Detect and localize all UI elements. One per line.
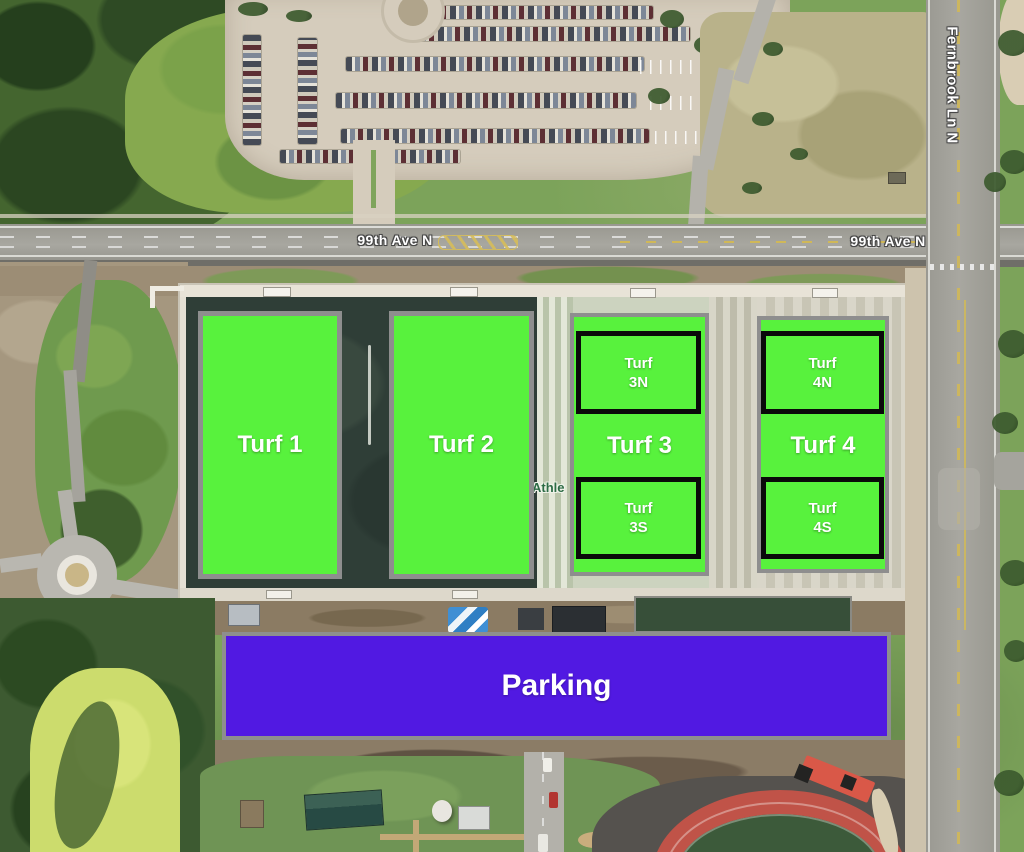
turf-4n-label: Turf 4N bbox=[808, 354, 836, 392]
dark-building bbox=[552, 606, 606, 634]
turf-4-label: Turf 4 bbox=[791, 432, 856, 460]
road-edge-line bbox=[0, 255, 1024, 257]
dirt-path bbox=[380, 834, 525, 840]
complex-stripe-strip bbox=[709, 296, 757, 588]
turn-lane-patch bbox=[938, 468, 980, 530]
tree bbox=[998, 330, 1024, 358]
car bbox=[549, 792, 558, 808]
car-row bbox=[346, 57, 644, 71]
overlay-turf-4n: Turf 4N bbox=[761, 331, 884, 414]
tree bbox=[790, 148, 808, 160]
overlay-turf-3: Turf 3N Turf 3 Turf 3S bbox=[570, 313, 709, 576]
turf-3-label-zone: Turf 3 bbox=[574, 414, 705, 477]
street-label-fernbrook: Fernbrook Ln N bbox=[944, 26, 961, 143]
blue-tent bbox=[448, 607, 488, 633]
road-fernbrook bbox=[926, 0, 1000, 852]
turf-3-label: Turf 3 bbox=[607, 432, 672, 460]
car-column bbox=[298, 38, 317, 144]
street-label-99th-ave-east: 99th Ave N bbox=[818, 233, 958, 249]
car bbox=[538, 834, 548, 852]
tree bbox=[763, 42, 783, 56]
car bbox=[543, 758, 552, 772]
crosswalk bbox=[930, 264, 994, 270]
tree bbox=[752, 112, 774, 126]
bleacher bbox=[263, 287, 291, 297]
turf-4-label-zone: Turf 4 bbox=[761, 414, 885, 477]
tree bbox=[286, 10, 312, 22]
overlay-turf-3n: Turf 3N bbox=[576, 331, 701, 414]
turf-1-label: Turf 1 bbox=[238, 431, 303, 459]
bleacher bbox=[452, 590, 478, 599]
gray-shed bbox=[228, 604, 260, 626]
side-road-east bbox=[994, 452, 1024, 490]
park-label-partial: Athle bbox=[532, 480, 565, 495]
turf-4s-label: Turf 4S bbox=[808, 499, 836, 537]
east-sidewalk-strip bbox=[905, 268, 926, 852]
car-row bbox=[336, 93, 636, 108]
turf-3n-label: Turf 3N bbox=[624, 354, 652, 392]
white-dome bbox=[432, 800, 452, 822]
road-edge-line bbox=[0, 226, 1024, 228]
dirt-path bbox=[413, 820, 419, 852]
field-shed bbox=[888, 172, 906, 184]
field-center-line bbox=[368, 345, 371, 445]
white-building bbox=[458, 806, 490, 830]
overlay-parking: Parking bbox=[222, 632, 891, 740]
tree bbox=[984, 172, 1006, 192]
tree bbox=[992, 412, 1018, 434]
tree bbox=[994, 770, 1024, 796]
satellite-map: 99th Ave N 99th Ave N Fernbrook Ln N Ath… bbox=[0, 0, 1024, 852]
tree bbox=[742, 182, 762, 194]
overlay-turf-2: Turf 2 bbox=[389, 311, 534, 579]
dry-field bbox=[700, 12, 932, 217]
tree bbox=[648, 88, 670, 104]
bleacher bbox=[266, 590, 292, 599]
car-row bbox=[412, 27, 690, 41]
bleacher bbox=[630, 288, 656, 298]
tree bbox=[998, 30, 1024, 56]
turf-3s-label: Turf 3S bbox=[624, 499, 652, 537]
tree bbox=[1000, 150, 1024, 174]
turf-2-label: Turf 2 bbox=[429, 431, 494, 459]
overlay-turf-1: Turf 1 bbox=[198, 311, 342, 579]
car-column bbox=[243, 35, 261, 145]
roundabout-island bbox=[65, 563, 89, 587]
yellow-solid-line bbox=[964, 300, 966, 630]
overlay-turf-3s: Turf 3S bbox=[576, 477, 701, 559]
overlay-turf-4: Turf 4N Turf 4 Turf 4S bbox=[757, 316, 889, 573]
practice-field bbox=[634, 596, 852, 633]
grandstand bbox=[304, 789, 384, 830]
curb-corner bbox=[150, 286, 184, 291]
overlay-turf-4s: Turf 4S bbox=[761, 477, 884, 559]
bleacher bbox=[812, 288, 838, 298]
sidewalk-north bbox=[0, 214, 935, 218]
road-edge-line bbox=[928, 0, 930, 852]
dark-building bbox=[518, 608, 544, 630]
tree bbox=[1000, 560, 1024, 586]
complex-stripe-strip bbox=[537, 296, 573, 588]
shed bbox=[240, 800, 264, 828]
bleacher bbox=[450, 287, 478, 297]
tree bbox=[660, 10, 684, 28]
street-label-99th-ave-west: 99th Ave N bbox=[325, 232, 465, 248]
tree bbox=[238, 2, 268, 16]
drive-median bbox=[371, 150, 376, 208]
parking-label: Parking bbox=[501, 669, 611, 703]
tree bbox=[1004, 640, 1024, 662]
curb-corner bbox=[150, 286, 155, 308]
